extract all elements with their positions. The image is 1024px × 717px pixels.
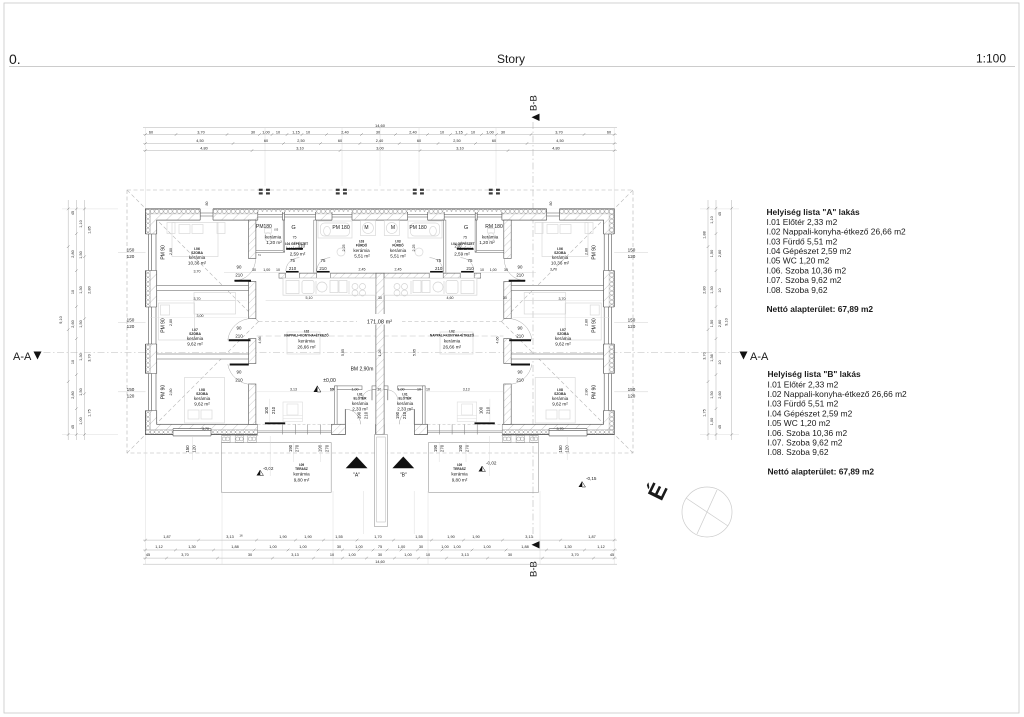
svg-text:30: 30 — [378, 553, 382, 557]
svg-text:kerámia: kerámia — [552, 396, 569, 401]
svg-text:NAPPALI+KONYHA+ÉTKEZŐ: NAPPALI+KONYHA+ÉTKEZŐ — [284, 333, 329, 338]
svg-text:190: 190 — [395, 411, 400, 419]
svg-text:kerámia: kerámia — [189, 255, 206, 260]
svg-text:90: 90 — [237, 264, 242, 269]
svg-text:60: 60 — [149, 130, 153, 134]
svg-text:BM 2,90m: BM 2,90m — [351, 367, 374, 373]
svg-text:1,50: 1,50 — [710, 391, 714, 398]
svg-text:30: 30 — [248, 553, 252, 557]
svg-text:210: 210 — [516, 334, 524, 339]
svg-text:2,40: 2,40 — [409, 130, 416, 134]
svg-text:5,05: 5,05 — [341, 349, 345, 356]
svg-text:75: 75 — [293, 236, 297, 240]
svg-text:10,36 m²: 10,36 m² — [188, 261, 207, 266]
svg-text:G: G — [464, 225, 468, 231]
svg-text:4,60: 4,60 — [447, 296, 454, 300]
svg-text:30: 30 — [337, 545, 341, 549]
svg-text:kerámia: kerámia — [552, 255, 569, 260]
svg-text:1,00: 1,00 — [404, 553, 411, 557]
svg-text:kerámia: kerámia — [390, 248, 407, 253]
svg-text:I.06. Szoba 10,36 m2: I.06. Szoba 10,36 m2 — [767, 265, 847, 275]
svg-text:A-A: A-A — [750, 351, 769, 363]
svg-text:1,00: 1,00 — [398, 545, 405, 549]
svg-text:3,13: 3,13 — [461, 553, 468, 557]
svg-text:1,30: 1,30 — [79, 286, 83, 293]
svg-text:10: 10 — [306, 130, 310, 134]
svg-text:2,80: 2,80 — [585, 389, 589, 396]
svg-text:1,30: 1,30 — [79, 353, 83, 360]
svg-text:I.01 Előtér 2,33 m2: I.01 Előtér 2,33 m2 — [768, 379, 839, 389]
svg-text:190: 190 — [458, 444, 463, 452]
svg-text:90: 90 — [518, 264, 523, 269]
svg-text:3,70: 3,70 — [88, 354, 92, 361]
svg-text:2,80: 2,80 — [585, 319, 589, 326]
svg-text:4,66: 4,66 — [496, 337, 500, 344]
svg-text:3,70: 3,70 — [194, 270, 201, 274]
svg-text:1,88: 1,88 — [521, 545, 528, 549]
svg-text:kerámia: kerámia — [444, 338, 461, 343]
svg-text:-0,02: -0,02 — [263, 466, 274, 471]
svg-text:B-B: B-B — [529, 95, 540, 111]
svg-text:100: 100 — [478, 406, 483, 414]
svg-text:10: 10 — [71, 360, 75, 364]
svg-text:2,80: 2,80 — [585, 248, 589, 255]
svg-text:1,10: 1,10 — [79, 220, 83, 227]
svg-text:45: 45 — [610, 553, 614, 557]
svg-text:2,60: 2,60 — [718, 391, 722, 398]
svg-text:100: 100 — [264, 406, 269, 414]
svg-text:30: 30 — [503, 296, 507, 300]
svg-text:270: 270 — [440, 444, 445, 452]
svg-text:2: 2 — [258, 254, 262, 256]
svg-text:3,70: 3,70 — [703, 352, 707, 359]
svg-text:1,50: 1,50 — [79, 388, 83, 395]
svg-text:16: 16 — [239, 534, 243, 538]
svg-text:1,12: 1,12 — [597, 545, 604, 549]
svg-text:2,50: 2,50 — [453, 139, 460, 143]
svg-text:1,10: 1,10 — [710, 216, 714, 223]
svg-text:1,00: 1,00 — [352, 387, 359, 391]
svg-text:270: 270 — [295, 444, 300, 452]
svg-text:B-B: B-B — [529, 561, 540, 577]
svg-text:2,59 m²: 2,59 m² — [454, 251, 470, 256]
svg-text:1,30: 1,30 — [188, 545, 195, 549]
svg-text:2,25: 2,25 — [342, 245, 346, 252]
svg-text:ELŐTÉR: ELŐTÉR — [399, 396, 413, 401]
svg-text:2,80: 2,80 — [88, 286, 92, 293]
svg-text:10: 10 — [426, 553, 430, 557]
svg-text:1,00: 1,00 — [262, 130, 269, 134]
svg-text:1,20 m²: 1,20 m² — [266, 240, 282, 245]
svg-text:210: 210 — [235, 378, 243, 383]
svg-text:5,51 m²: 5,51 m² — [390, 254, 406, 259]
svg-text:120: 120 — [191, 445, 196, 453]
svg-text:1,75: 1,75 — [703, 409, 707, 416]
svg-text:30: 30 — [419, 545, 423, 549]
svg-text:Helyiség lista "B" lakás: Helyiség lista "B" lakás — [768, 369, 861, 379]
svg-text:2,40: 2,40 — [376, 139, 383, 143]
svg-text:I.08. Szoba 9,62: I.08. Szoba 9,62 — [768, 447, 829, 457]
svg-text:1,36: 1,36 — [710, 354, 714, 361]
svg-text:kerámia: kerámia — [451, 472, 468, 477]
svg-text:1,70: 1,70 — [374, 535, 381, 539]
svg-text:Nettó alapterület: 67,89 m2: Nettó alapterület: 67,89 m2 — [768, 467, 875, 477]
svg-text:5,05: 5,05 — [413, 349, 417, 356]
svg-text:I.05 WC 1,20 m2: I.05 WC 1,20 m2 — [767, 256, 830, 266]
svg-text:2,59 m²: 2,59 m² — [290, 251, 306, 256]
svg-text:kerámia: kerámia — [555, 336, 572, 341]
svg-text:I.03 Fürdő 5,51 m2: I.03 Fürdő 5,51 m2 — [767, 236, 838, 246]
svg-text:9,10: 9,10 — [59, 316, 63, 323]
svg-text:120: 120 — [628, 254, 636, 259]
svg-text:kerámia: kerámia — [293, 472, 310, 477]
svg-text:1,12: 1,12 — [155, 545, 162, 549]
svg-text:2,25: 2,25 — [412, 245, 416, 252]
svg-text:2,33 m²: 2,33 m² — [397, 406, 413, 411]
svg-text:I.05: I.05 — [274, 228, 279, 232]
svg-text:90: 90 — [518, 325, 523, 330]
svg-text:270: 270 — [324, 444, 329, 452]
svg-text:60: 60 — [417, 139, 421, 143]
svg-text:120: 120 — [628, 324, 636, 329]
svg-text:2,45: 2,45 — [395, 268, 402, 272]
svg-text:10: 10 — [718, 288, 722, 292]
svg-text:PM180: PM180 — [256, 224, 272, 230]
svg-text:1,75: 1,75 — [88, 409, 92, 416]
svg-text:1,00: 1,00 — [263, 268, 270, 272]
svg-text:30: 30 — [501, 130, 505, 134]
svg-text:Nettó alapterület: 67,89 m2: Nettó alapterület: 67,89 m2 — [767, 304, 874, 314]
svg-text:45: 45 — [718, 425, 722, 429]
svg-text:G: G — [291, 225, 295, 231]
svg-text:1,90: 1,90 — [304, 535, 311, 539]
svg-text:45: 45 — [71, 211, 75, 215]
svg-text:1,88: 1,88 — [231, 545, 238, 549]
svg-text:PM 90: PM 90 — [592, 245, 598, 260]
svg-text:1,00: 1,00 — [441, 545, 448, 549]
svg-text:150: 150 — [127, 317, 135, 322]
svg-text:10: 10 — [330, 387, 334, 391]
svg-text:1,30: 1,30 — [710, 286, 714, 293]
svg-text:PM 90: PM 90 — [161, 385, 167, 400]
svg-text:1,00: 1,00 — [398, 387, 405, 391]
svg-text:3,00: 3,00 — [376, 146, 383, 150]
svg-text:I.08. Szoba 9,62: I.08. Szoba 9,62 — [767, 285, 828, 295]
svg-text:I.02 Nappali-konyha-étkező 26,: I.02 Nappali-konyha-étkező 26,66 m2 — [768, 389, 908, 399]
svg-text:kerámia: kerámia — [298, 338, 315, 343]
svg-text:80: 80 — [205, 202, 209, 206]
svg-text:1,50: 1,50 — [79, 320, 83, 327]
svg-text:I.03 Fürdő 5,51 m2: I.03 Fürdő 5,51 m2 — [768, 399, 839, 409]
svg-text:171,08 m²: 171,08 m² — [367, 319, 392, 325]
svg-text:PM 90: PM 90 — [161, 318, 167, 333]
svg-text:TERASZ: TERASZ — [295, 467, 308, 471]
svg-text:kerámia: kerámia — [482, 235, 499, 240]
svg-text:10: 10 — [276, 130, 280, 134]
svg-text:10: 10 — [718, 360, 722, 364]
svg-text:75: 75 — [290, 258, 295, 263]
svg-text:150: 150 — [185, 445, 190, 453]
svg-text:210: 210 — [364, 411, 369, 419]
svg-text:60: 60 — [607, 130, 611, 134]
svg-text:kerámia: kerámia — [265, 235, 282, 240]
svg-text:190: 190 — [356, 411, 361, 419]
svg-text:3,70: 3,70 — [555, 130, 562, 134]
svg-text:I.07. Szoba 9,62 m2: I.07. Szoba 9,62 m2 — [767, 275, 842, 285]
svg-text:30: 30 — [377, 387, 381, 391]
svg-text:10,36 m²: 10,36 m² — [551, 261, 570, 266]
svg-text:75: 75 — [436, 258, 441, 263]
svg-text:1,87: 1,87 — [163, 535, 170, 539]
svg-text:45: 45 — [71, 425, 75, 429]
svg-text:60: 60 — [338, 139, 342, 143]
svg-text:1,87: 1,87 — [588, 535, 595, 539]
svg-text:9,62 m²: 9,62 m² — [552, 402, 568, 407]
svg-text:90: 90 — [518, 369, 523, 374]
svg-text:TERASZ: TERASZ — [453, 467, 466, 471]
svg-text:120: 120 — [127, 254, 135, 259]
svg-text:3,70: 3,70 — [194, 297, 201, 301]
svg-text:FÜRDŐ: FÜRDŐ — [356, 243, 368, 248]
svg-text:I.04 Gépészet 2,59 m2: I.04 Gépészet 2,59 m2 — [768, 408, 853, 418]
svg-text:120: 120 — [564, 445, 569, 453]
svg-text:14,60: 14,60 — [375, 123, 386, 128]
svg-text:30: 30 — [252, 268, 256, 272]
svg-text:1,26: 1,26 — [378, 350, 382, 357]
svg-text:5,51 m²: 5,51 m² — [354, 254, 370, 259]
svg-text:9,80 m²: 9,80 m² — [452, 478, 468, 483]
svg-text:1:100: 1:100 — [976, 52, 1006, 66]
svg-text:10: 10 — [71, 290, 75, 294]
svg-text:210: 210 — [466, 266, 474, 271]
svg-text:210: 210 — [235, 273, 243, 278]
svg-text:2,80: 2,80 — [169, 319, 173, 326]
svg-text:210: 210 — [486, 406, 491, 414]
svg-text:1,50: 1,50 — [79, 251, 83, 258]
svg-text:kerámia: kerámia — [352, 401, 369, 406]
svg-text:150: 150 — [558, 445, 563, 453]
svg-text:10: 10 — [440, 130, 444, 134]
svg-text:75: 75 — [463, 236, 467, 240]
svg-text:3,70: 3,70 — [571, 553, 578, 557]
svg-text:PM 90: PM 90 — [161, 245, 167, 260]
svg-text:210: 210 — [289, 266, 297, 271]
svg-text:3,70: 3,70 — [181, 553, 188, 557]
svg-text:3,13: 3,13 — [463, 388, 470, 392]
svg-text:kerámia: kerámia — [187, 336, 204, 341]
svg-text:ELŐTÉR: ELŐTÉR — [354, 396, 368, 401]
svg-text:2,80: 2,80 — [71, 391, 75, 398]
svg-text:14,60: 14,60 — [375, 560, 385, 564]
svg-text:9,10: 9,10 — [725, 318, 729, 325]
svg-text:1,00: 1,00 — [299, 545, 306, 549]
svg-text:120: 120 — [127, 393, 135, 398]
svg-text:Story: Story — [497, 52, 525, 66]
svg-text:9,80 m²: 9,80 m² — [294, 478, 310, 483]
svg-text:30: 30 — [251, 130, 255, 134]
svg-text:210: 210 — [516, 378, 524, 383]
svg-text:1,20 m²: 1,20 m² — [479, 240, 495, 245]
svg-text:45: 45 — [146, 553, 150, 557]
svg-text:26,66 m²: 26,66 m² — [297, 344, 316, 349]
svg-text:1,00: 1,00 — [483, 545, 490, 549]
svg-text:10: 10 — [426, 388, 430, 392]
svg-text:1,90: 1,90 — [447, 535, 454, 539]
svg-text:1,88: 1,88 — [703, 231, 707, 238]
svg-text:90: 90 — [237, 325, 242, 330]
svg-text:210: 210 — [235, 334, 243, 339]
svg-text:1,00: 1,00 — [453, 545, 460, 549]
svg-text:75: 75 — [468, 258, 473, 263]
svg-text:75: 75 — [378, 545, 382, 549]
svg-text:210: 210 — [402, 411, 407, 419]
svg-text:3,13: 3,13 — [525, 535, 532, 539]
svg-text:150: 150 — [628, 247, 636, 252]
svg-text:FÜRDŐ: FÜRDŐ — [392, 243, 404, 248]
svg-text:kerámia: kerámia — [194, 396, 211, 401]
svg-text:1,15: 1,15 — [292, 130, 299, 134]
svg-text:150: 150 — [628, 317, 636, 322]
svg-text:I.02 Nappali-konyha-étkező 26,: I.02 Nappali-konyha-étkező 26,66 m2 — [767, 227, 907, 237]
svg-text:3,13: 3,13 — [290, 388, 297, 392]
svg-text:210: 210 — [455, 244, 463, 249]
svg-text:190: 190 — [288, 444, 293, 452]
svg-text:9,62 m²: 9,62 m² — [187, 342, 203, 347]
svg-text:2,80: 2,80 — [703, 286, 707, 293]
svg-text:9,62 m²: 9,62 m² — [194, 402, 210, 407]
svg-text:M: M — [391, 225, 395, 231]
svg-text:PM 90: PM 90 — [592, 318, 598, 333]
svg-text:kerámia: kerámia — [353, 248, 370, 253]
svg-text:150: 150 — [127, 387, 135, 392]
svg-text:kerámia: kerámia — [397, 401, 414, 406]
svg-text:2,80: 2,80 — [71, 250, 75, 257]
svg-text:30: 30 — [378, 296, 382, 300]
svg-text:1,00: 1,00 — [79, 417, 83, 424]
svg-text:75: 75 — [321, 258, 326, 263]
svg-text:2,33 m²: 2,33 m² — [352, 406, 368, 411]
svg-text:Helyiség lista "A" lakás: Helyiség lista "A" lakás — [767, 207, 860, 217]
svg-text:1,00: 1,00 — [710, 418, 714, 425]
svg-text:9,62 m²: 9,62 m² — [555, 342, 571, 347]
svg-text:1,85: 1,85 — [88, 226, 92, 233]
svg-text:1,50: 1,50 — [710, 320, 714, 327]
svg-text:I.04 Gépészet 2,59 m2: I.04 Gépészet 2,59 m2 — [767, 246, 852, 256]
svg-text:10: 10 — [276, 268, 280, 272]
svg-text:3,13: 3,13 — [291, 553, 298, 557]
svg-text:210: 210 — [271, 406, 276, 414]
svg-text:270: 270 — [465, 444, 470, 452]
svg-text:3,13: 3,13 — [226, 535, 233, 539]
svg-text:A-A: A-A — [13, 351, 32, 363]
svg-text:2,50: 2,50 — [297, 139, 304, 143]
svg-text:4,50: 4,50 — [196, 139, 203, 143]
svg-text:RM 180: RM 180 — [485, 224, 503, 230]
svg-text:210: 210 — [298, 244, 306, 249]
svg-text:4,66: 4,66 — [258, 337, 262, 344]
svg-text:2,45: 2,45 — [359, 268, 366, 272]
svg-text:1,00: 1,00 — [269, 545, 276, 549]
svg-text:120: 120 — [628, 393, 636, 398]
svg-text:"A": "A" — [353, 473, 360, 479]
svg-text:3,00: 3,00 — [197, 314, 204, 318]
svg-text:1,55: 1,55 — [335, 535, 342, 539]
svg-text:3,10: 3,10 — [456, 146, 463, 150]
svg-text:4,50: 4,50 — [556, 139, 563, 143]
svg-text:210: 210 — [319, 266, 327, 271]
svg-text:90: 90 — [237, 369, 242, 374]
svg-text:-0,02: -0,02 — [486, 461, 497, 466]
svg-text:30: 30 — [508, 553, 512, 557]
svg-text:1,00: 1,00 — [348, 553, 355, 557]
svg-text:2,60: 2,60 — [718, 250, 722, 257]
svg-text:1,90: 1,90 — [472, 535, 479, 539]
svg-text:120: 120 — [127, 324, 135, 329]
svg-text:PM 180: PM 180 — [409, 225, 426, 231]
svg-text:-0,15: -0,15 — [586, 476, 597, 481]
svg-text:2,80: 2,80 — [169, 389, 173, 396]
svg-text:2,80: 2,80 — [169, 248, 173, 255]
svg-text:150: 150 — [127, 247, 135, 252]
svg-text:NAPPALI+KONYHA+ÉTKEZŐ: NAPPALI+KONYHA+ÉTKEZŐ — [430, 333, 475, 338]
svg-text:I.05 WC 1,20 m2: I.05 WC 1,20 m2 — [768, 418, 831, 428]
svg-text:60: 60 — [264, 139, 268, 143]
svg-text:2,40: 2,40 — [341, 130, 348, 134]
svg-text:PM 180: PM 180 — [332, 225, 349, 231]
svg-text:I.06. Szoba 10,36 m2: I.06. Szoba 10,36 m2 — [768, 428, 848, 438]
svg-text:PM 90: PM 90 — [592, 385, 598, 400]
svg-text:±0,00: ±0,00 — [323, 378, 336, 384]
svg-text:3,70: 3,70 — [202, 427, 209, 431]
svg-text:30: 30 — [376, 130, 380, 134]
svg-text:60: 60 — [492, 139, 496, 143]
svg-text:1,00: 1,00 — [490, 268, 497, 272]
svg-text:80: 80 — [549, 202, 553, 206]
svg-text:3,70: 3,70 — [559, 297, 566, 301]
svg-text:2,60: 2,60 — [718, 320, 722, 327]
svg-text:1,50: 1,50 — [710, 250, 714, 257]
svg-text:I.01 Előtér 2,33 m2: I.01 Előtér 2,33 m2 — [767, 217, 838, 227]
svg-text:30: 30 — [504, 268, 508, 272]
svg-text:0.: 0. — [9, 51, 21, 67]
svg-text:150: 150 — [628, 387, 636, 392]
svg-text:45: 45 — [718, 212, 722, 216]
svg-text:1,30: 1,30 — [564, 545, 571, 549]
svg-text:5,10: 5,10 — [306, 296, 313, 300]
svg-text:4,80: 4,80 — [552, 146, 559, 150]
svg-text:M: M — [364, 225, 368, 231]
svg-text:210: 210 — [516, 273, 524, 278]
svg-text:3,10: 3,10 — [296, 146, 303, 150]
svg-text:3,70: 3,70 — [557, 427, 564, 431]
svg-text:190: 190 — [433, 444, 438, 452]
svg-text:1,00: 1,00 — [486, 130, 493, 134]
svg-text:1,90: 1,90 — [279, 535, 286, 539]
svg-text:3,70: 3,70 — [550, 267, 557, 271]
svg-text:1,00: 1,00 — [355, 545, 362, 549]
svg-text:10: 10 — [330, 553, 334, 557]
svg-text:4,80: 4,80 — [200, 146, 207, 150]
svg-text:"B": "B" — [400, 473, 407, 479]
svg-text:10: 10 — [471, 130, 475, 134]
svg-text:210: 210 — [435, 266, 443, 271]
svg-text:10: 10 — [417, 387, 421, 391]
svg-text:2,60: 2,60 — [71, 320, 75, 327]
svg-text:26,66 m²: 26,66 m² — [443, 344, 462, 349]
svg-text:1,55: 1,55 — [415, 535, 422, 539]
svg-text:3,70: 3,70 — [197, 130, 204, 134]
svg-text:10: 10 — [480, 268, 484, 272]
